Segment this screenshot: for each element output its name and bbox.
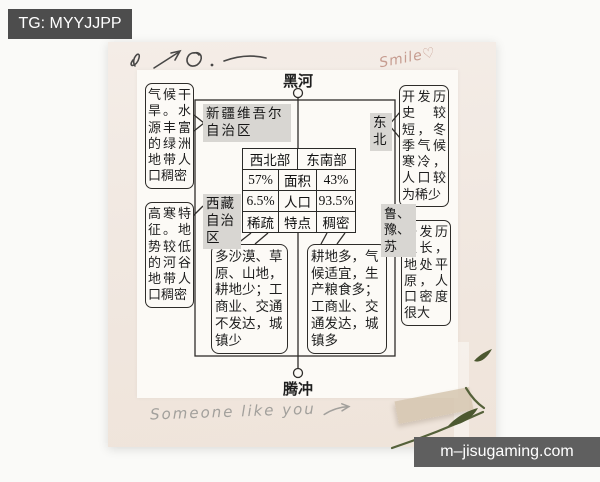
area-nw: 57% bbox=[243, 170, 279, 191]
signature-scribble bbox=[126, 44, 274, 76]
watermark-bottom-right: m–jisugaming.com bbox=[414, 437, 600, 467]
feature-label: 特点 bbox=[279, 212, 317, 233]
note-xinjiang: 气候干旱。水源丰富的绿洲地带人口稠密 bbox=[145, 83, 194, 189]
bubble-northwest-detail: 多沙漠、草原、山地，耕地少；工商业、交通不发达，城镇少 bbox=[211, 244, 288, 354]
city-heihe: 黑河 bbox=[268, 70, 328, 91]
city-tengchong: 腾冲 bbox=[268, 378, 328, 399]
handwriting-someone: Someone like you bbox=[150, 398, 352, 423]
note-northeast: 开发历史较短，冬季气候寒冷，人口较为稀少 bbox=[399, 85, 449, 207]
photo-card: Smile♡ bbox=[108, 42, 496, 447]
handwriting-smile: Smile♡ bbox=[378, 45, 437, 72]
population-nw: 6.5% bbox=[243, 191, 279, 212]
feature-se: 稠密 bbox=[317, 212, 356, 233]
table-row-area: 57% 面积 43% bbox=[243, 170, 356, 191]
label-northeast: 东北 bbox=[370, 113, 392, 151]
bubble-southeast-detail: 耕地多，气候适宜，生产粮食多；工商业、交通发达，城镇多 bbox=[307, 244, 387, 354]
table-header-row: 西北部 东南部 bbox=[243, 149, 356, 170]
handwriting-arrow-icon bbox=[322, 400, 353, 417]
area-label: 面积 bbox=[279, 170, 317, 191]
handwriting-someone-text: Someone like you bbox=[150, 400, 316, 424]
population-label: 人口 bbox=[279, 191, 317, 212]
header-northwest: 西北部 bbox=[243, 149, 298, 170]
table-row-feature: 稀疏 特点 稠密 bbox=[243, 212, 356, 233]
table-row-population: 6.5% 人口 93.5% bbox=[243, 191, 356, 212]
header-southeast: 东南部 bbox=[298, 149, 356, 170]
label-lu-yu-su: 鲁、豫、苏 bbox=[381, 204, 416, 257]
area-se: 43% bbox=[317, 170, 356, 191]
note-tibet: 高寒特征。地势较低的河谷地带人口稠密 bbox=[145, 202, 194, 308]
label-xinjiang: 新疆维吾尔自治区 bbox=[203, 104, 291, 142]
label-tibet: 西藏自治区 bbox=[203, 194, 241, 249]
feature-nw: 稀疏 bbox=[243, 212, 279, 233]
population-se: 93.5% bbox=[317, 191, 356, 212]
comparison-table: 西北部 东南部 57% 面积 43% 6.5% 人口 93.5% 稀疏 特点 稠… bbox=[242, 148, 356, 233]
watermark-top-left: TG: MYYJJPP bbox=[8, 9, 132, 39]
